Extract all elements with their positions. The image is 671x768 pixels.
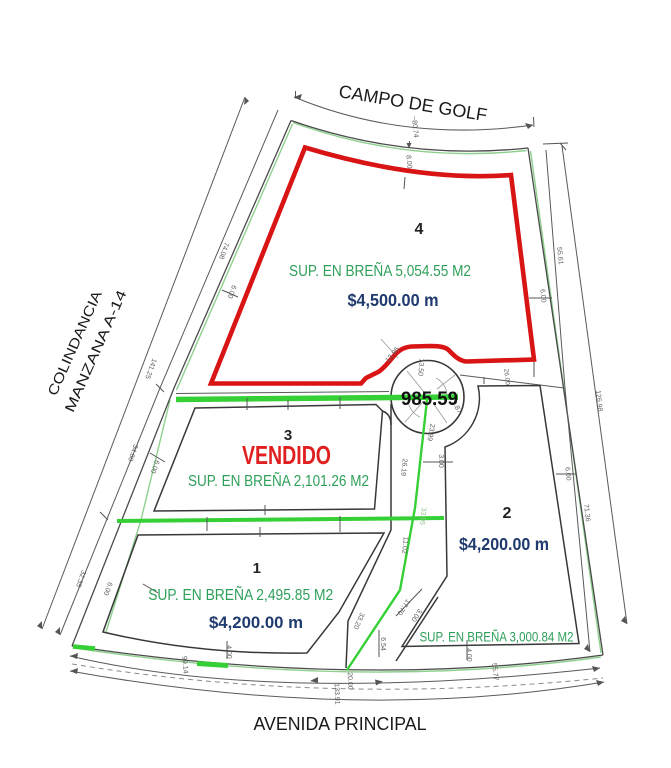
svg-text:6.00: 6.00 [563, 467, 571, 481]
svg-text:$4,200.00 m: $4,200.00 m [459, 534, 549, 554]
svg-text:VENDIDO: VENDIDO [242, 440, 331, 470]
svg-text:AVENIDA PRINCIPAL: AVENIDA PRINCIPAL [254, 714, 427, 734]
svg-text:4.00: 4.00 [465, 648, 472, 662]
svg-text:SUP. EN BREÑA 3,000.84 M2: SUP. EN BREÑA 3,000.84 M2 [420, 629, 574, 645]
svg-text:6.00: 6.00 [538, 289, 546, 303]
svg-text:$4,200.00 m: $4,200.00 m [209, 613, 303, 632]
svg-text:6.54: 6.54 [379, 637, 386, 651]
svg-text:3.00: 3.00 [437, 454, 444, 468]
svg-text:133.91: 133.91 [333, 683, 341, 705]
svg-text:1: 1 [253, 560, 261, 577]
svg-text:SUP. EN BREÑA 2,495.85 M2: SUP. EN BREÑA 2,495.85 M2 [148, 584, 333, 604]
svg-text:SUP. EN BREÑA 2,101.26 M2: SUP. EN BREÑA 2,101.26 M2 [188, 470, 369, 490]
svg-text:SUP. EN BREÑA 5,054.55 M2: SUP. EN BREÑA 5,054.55 M2 [289, 260, 471, 280]
svg-text:20.00: 20.00 [346, 672, 354, 690]
svg-text:4.00: 4.00 [225, 645, 232, 659]
svg-text:985.59: 985.59 [401, 389, 458, 410]
svg-text:2: 2 [503, 505, 512, 522]
svg-text:8.00: 8.00 [404, 155, 412, 169]
svg-text:$4,500.00 m: $4,500.00 m [348, 290, 439, 310]
svg-text:4: 4 [415, 221, 424, 238]
